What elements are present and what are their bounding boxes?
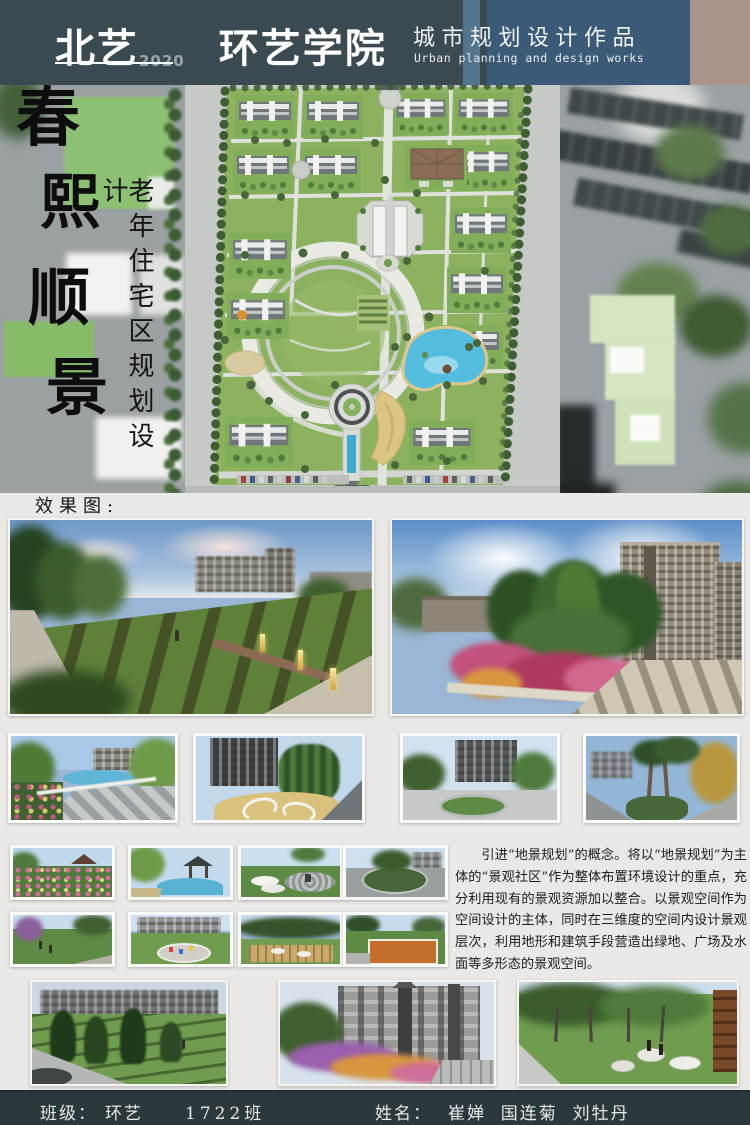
render-large-lawn (8, 518, 374, 716)
stair-tower (398, 982, 412, 1064)
pergola (713, 990, 737, 1072)
thumb-block-plaza (400, 733, 560, 823)
name-label: 姓名： (375, 1099, 432, 1124)
play-equipment (189, 946, 193, 951)
purple-tree (15, 917, 43, 941)
trees (291, 846, 325, 862)
header-corner-block (690, 0, 750, 85)
trees (698, 481, 750, 493)
building (265, 548, 295, 592)
gazebo-post (189, 866, 192, 878)
conifer (50, 1010, 76, 1062)
clubhouse (405, 145, 467, 189)
brand-name: 北艺 (55, 26, 139, 72)
median (626, 796, 688, 822)
master-plan-band: 春 熙 顺 景 老年住宅区规划设计 (0, 85, 750, 493)
trees (680, 295, 750, 357)
gazebo-post (205, 866, 208, 878)
college-name: 环艺学院 (219, 26, 387, 72)
thumb-courtyard (193, 733, 365, 823)
class-name: 环艺 (105, 1099, 143, 1124)
palm-fronds (654, 736, 700, 764)
thumb-playground (128, 912, 233, 967)
conifer (160, 1022, 182, 1062)
roof-notch (630, 415, 660, 441)
render-large-flowers (390, 518, 744, 716)
render-building-garden (278, 980, 496, 1086)
light-bollard (298, 650, 303, 670)
green-roof-footprint (590, 295, 675, 343)
renders-section-label: 效果图: (35, 492, 119, 518)
left-title-panel: 春 熙 顺 景 老年住宅区规划设计 (0, 85, 190, 493)
play-lawn (225, 351, 265, 375)
trees (655, 125, 725, 180)
pond (157, 878, 223, 895)
trees (708, 383, 750, 453)
deck (131, 888, 161, 897)
right-blur-panel (560, 85, 750, 493)
person (182, 1040, 185, 1049)
header: 北艺2020环艺学院 城市规划设计作品 Urban planning and d… (0, 0, 750, 85)
footer: 班级： 环艺 1722班 姓名： 崔婵 国连菊 刘牡丹 (0, 1090, 750, 1125)
thumb-orange-court (343, 912, 448, 967)
work-title-cn: 城市规划设计作品 (413, 20, 641, 52)
person (175, 630, 179, 641)
trees (372, 850, 412, 872)
deck (249, 945, 333, 962)
play-equipment (179, 949, 183, 954)
stone-bench (669, 1056, 701, 1070)
conifer (120, 1008, 146, 1064)
path (346, 953, 370, 964)
work-title-en: Urban planning and design works (414, 51, 644, 65)
building (455, 740, 517, 782)
brand-year: 2020 (139, 52, 185, 70)
tree-band (238, 917, 343, 939)
person (39, 941, 42, 949)
student-names: 崔婵 国连菊 刘牡丹 (448, 1099, 630, 1124)
calligraphy-char-4: 景 (46, 357, 108, 419)
canopy (599, 986, 709, 1026)
description-paragraph: 引进“地景规划”的概念。将以“地景规划”为主体的“景观社区”作为整体布置环境设计… (455, 845, 747, 976)
thumb-wood-deck (238, 912, 343, 967)
project-title-vertical: 老年住宅区规划设计 (100, 177, 152, 489)
canopy-bench (261, 884, 285, 893)
sky (241, 848, 340, 868)
light-bollard (260, 634, 265, 652)
dark-building (210, 738, 278, 786)
shrub-island (439, 794, 507, 818)
poster: 北艺2020环艺学院 城市规划设计作品 Urban planning and d… (0, 0, 750, 1125)
render-terraced-lawn (30, 980, 228, 1086)
thumb-pond-gazebo (128, 845, 233, 900)
building (590, 752, 632, 778)
thumb-green-island (343, 845, 448, 900)
thumb-palm-walk (583, 733, 740, 823)
class-number: 1722班 (185, 1099, 265, 1124)
calligraphy-char-2: 熙 (40, 173, 100, 233)
sculpture (305, 874, 311, 882)
person (659, 1044, 663, 1055)
bench (271, 948, 285, 954)
dark-building (560, 483, 615, 493)
roof-notch (610, 347, 644, 373)
person (647, 1040, 651, 1051)
calligraphy-char-3: 顺 (28, 267, 90, 329)
master-plan (185, 85, 565, 493)
stone-bench (611, 1060, 635, 1072)
thumb-flower-garden (10, 845, 115, 900)
thumb-circle-plaza (238, 845, 343, 900)
school-brand: 北艺2020环艺学院 (55, 16, 387, 74)
court (368, 939, 438, 965)
render-park-benches (517, 980, 739, 1086)
calligraphy-char-1: 春 (16, 87, 80, 151)
bench (297, 951, 311, 957)
class-label: 班级： (40, 1099, 97, 1124)
trunk (627, 1008, 630, 1042)
thumb-garden-plaza (8, 733, 178, 823)
trees (73, 915, 113, 935)
light-bollard (330, 668, 336, 690)
apartment-row (137, 917, 221, 933)
trees (511, 752, 555, 792)
building-wing (714, 562, 742, 666)
building (412, 852, 442, 868)
brand-underline (55, 62, 173, 64)
trees (72, 555, 127, 617)
play-equipment (169, 947, 173, 952)
thumb-lawn-people (10, 912, 115, 967)
play-pad (157, 943, 211, 963)
person (49, 945, 52, 953)
dark-building (560, 405, 595, 493)
flower-field (13, 866, 112, 897)
stair-tower (448, 984, 460, 1064)
conifer (84, 1016, 108, 1064)
